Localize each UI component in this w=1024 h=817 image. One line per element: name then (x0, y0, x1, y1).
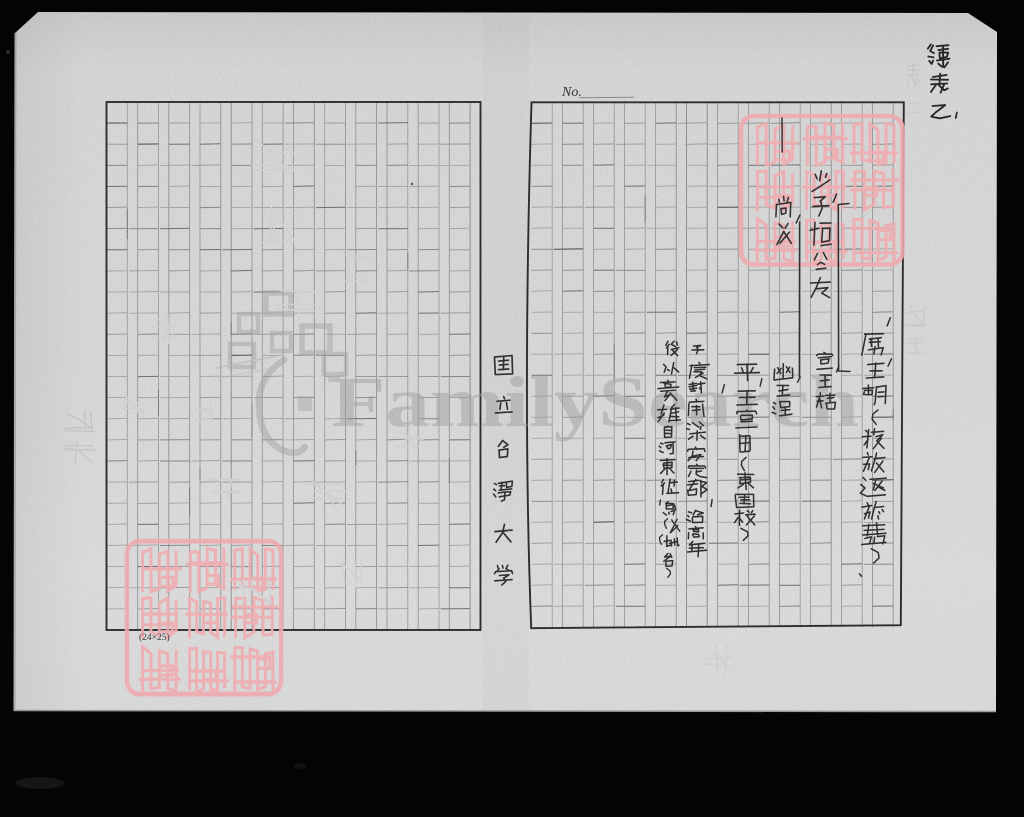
svg-text:(24×25): (24×25) (139, 632, 170, 643)
svg-text:No.: No. (561, 85, 582, 100)
